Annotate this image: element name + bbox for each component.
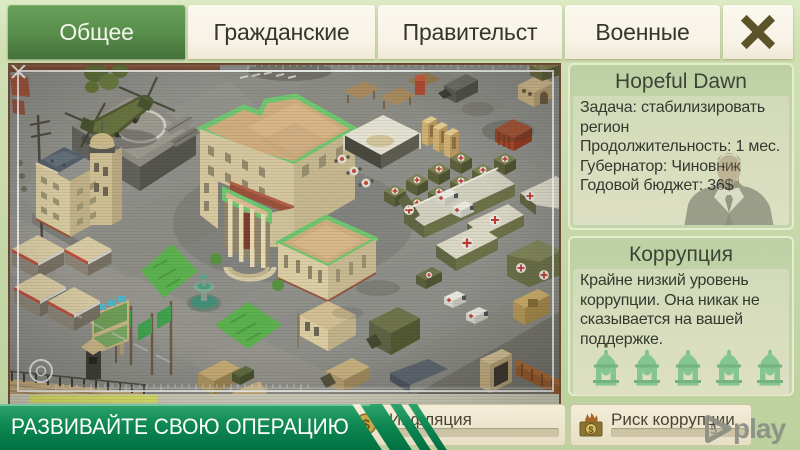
svg-text:5: 5	[710, 422, 717, 437]
svg-text:play: play	[733, 413, 786, 444]
svg-text:$: $	[588, 425, 593, 435]
